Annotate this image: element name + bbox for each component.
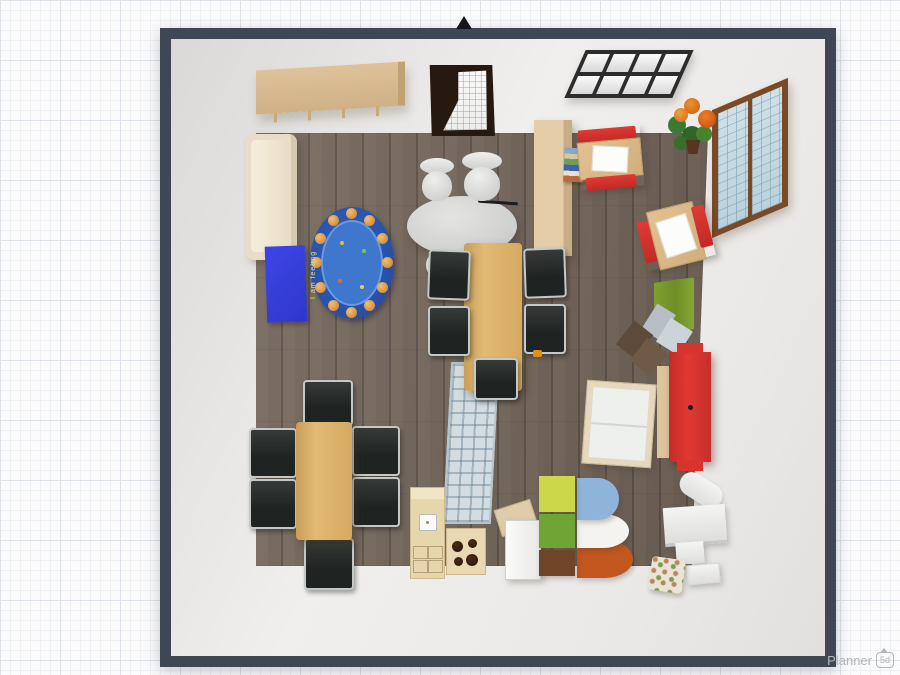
small-toy[interactable] [533, 350, 542, 357]
burner [466, 554, 478, 566]
window-pane [606, 54, 636, 72]
floral-pouf[interactable] [648, 556, 686, 594]
black-chair[interactable] [523, 247, 567, 298]
vase[interactable] [420, 158, 456, 204]
shelf-green-cube [539, 514, 575, 548]
black-chair[interactable] [352, 477, 400, 527]
cream-sofa[interactable] [246, 134, 297, 260]
vase-body [422, 171, 452, 201]
window-pane [596, 76, 626, 94]
sofa-seat [251, 140, 287, 252]
vase[interactable] [462, 152, 502, 204]
drawer [428, 546, 443, 559]
black-chair[interactable] [303, 380, 353, 426]
door-glass-panel [427, 65, 495, 136]
shelf-hook [342, 108, 345, 118]
drawer [428, 560, 443, 573]
kitchen-cabinet[interactable] [410, 487, 445, 579]
crib-divider [591, 422, 647, 428]
fridge[interactable] [505, 520, 541, 580]
flower [674, 108, 688, 122]
red-sofa[interactable] [669, 352, 711, 462]
flower-pot[interactable] [668, 98, 720, 156]
black-chair[interactable] [427, 249, 471, 300]
north-marker-icon [456, 16, 472, 29]
paper-sheet [591, 145, 628, 173]
burner [454, 557, 463, 566]
window-pane [658, 54, 688, 72]
burner [468, 539, 477, 548]
rug-text: I am feeling [310, 231, 394, 319]
burner [452, 541, 463, 552]
window-pane [622, 76, 652, 94]
sofa-button [688, 405, 693, 410]
watermark: Planner 5d [827, 652, 894, 668]
black-chair[interactable] [474, 358, 518, 400]
emotions-rug[interactable]: I am feeling [310, 207, 394, 319]
watermark-brand: Planner [827, 653, 872, 668]
shelf-blue-arc [577, 478, 619, 520]
tall-cabinet[interactable] [534, 120, 572, 256]
black-chair[interactable] [304, 538, 354, 590]
window-pane [580, 54, 610, 72]
crib[interactable] [582, 381, 656, 468]
shelf-hook [308, 110, 311, 120]
sink [419, 514, 437, 531]
leaf [696, 126, 712, 142]
toy-shelf[interactable] [537, 474, 632, 576]
window-pane [648, 76, 678, 94]
shelf-brown-cube [539, 550, 575, 576]
window-pane [718, 101, 748, 230]
window-pane [570, 76, 600, 94]
window-pane [752, 86, 782, 215]
black-chair[interactable] [249, 428, 297, 478]
grid-window-panel[interactable] [564, 50, 693, 98]
shelf-hook [274, 112, 277, 122]
shelf-yellow-cube [539, 476, 575, 512]
rug-face [346, 208, 357, 219]
drawer [413, 546, 428, 559]
dining-table-left[interactable] [296, 422, 352, 540]
wall-shelf[interactable] [256, 61, 405, 114]
black-chair[interactable] [428, 306, 470, 356]
black-chair[interactable] [524, 304, 566, 354]
rug-face [328, 215, 339, 226]
rug-face [364, 215, 375, 226]
glass-door[interactable] [427, 65, 495, 136]
piano-bench[interactable] [685, 563, 721, 586]
leaf [674, 136, 688, 150]
black-chair[interactable] [352, 426, 400, 476]
stove[interactable] [446, 528, 486, 575]
shelf-hook [376, 106, 379, 116]
floor-plan-canvas: I am feeling [0, 0, 900, 675]
vase-body [464, 167, 500, 201]
faucet [426, 521, 429, 524]
watermark-badge-icon: 5d [876, 652, 894, 668]
black-chair[interactable] [249, 479, 297, 529]
drawer [413, 560, 428, 573]
school-desk-1[interactable] [576, 125, 645, 190]
blue-play-mat[interactable] [265, 245, 308, 322]
window-pane [632, 54, 662, 72]
flower [698, 110, 716, 128]
